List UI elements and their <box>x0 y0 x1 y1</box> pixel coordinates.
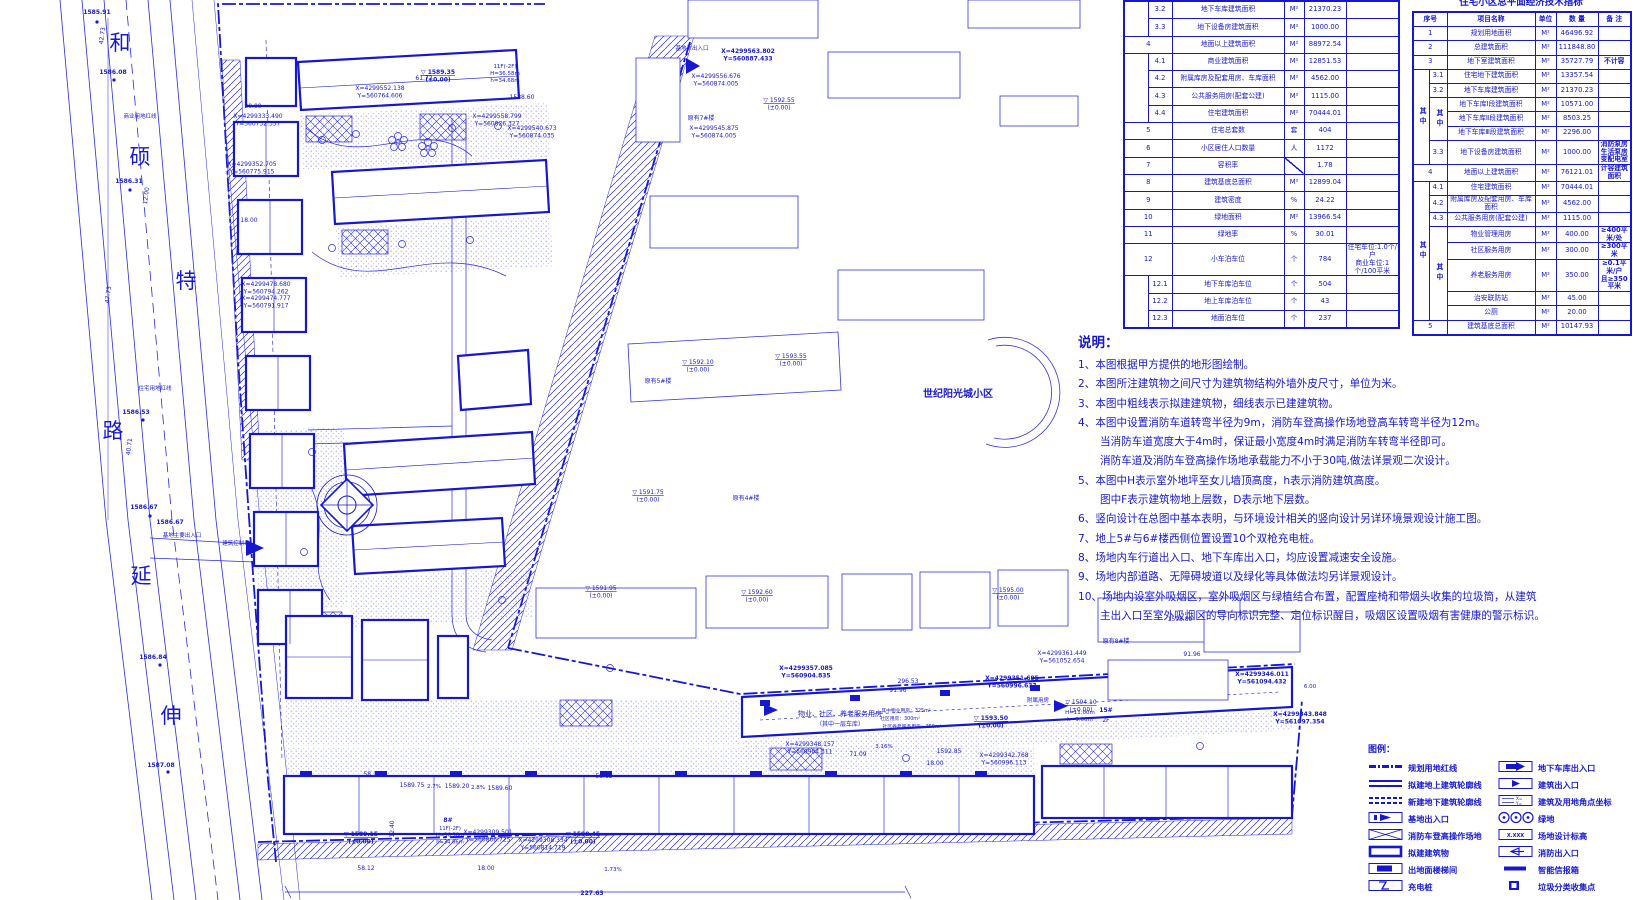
cut-icon <box>1498 894 1534 900</box>
table-cell: 4.1 <box>1148 53 1172 70</box>
economic-indicator-table-overall: 3.2地下车库建筑面积M²21370.233.3地下设备房建筑面积M²1000.… <box>1123 0 1400 329</box>
table-cell: 4562.00 <box>1556 195 1598 212</box>
cut-icon <box>1368 894 1404 900</box>
table-cell <box>1346 311 1399 329</box>
legend-label: 拟建地上建筑轮廓线 <box>1408 779 1482 791</box>
plan-label: ▽ 1593.50(±0.00) <box>974 715 1008 730</box>
plan-label: 40.71 <box>125 438 134 456</box>
legend-row <box>1368 895 1630 900</box>
table-cell: 个 <box>1284 244 1304 276</box>
table-cell: 地面泊车位 <box>1172 311 1284 329</box>
plan-label: 1586.67 <box>130 504 157 511</box>
table-cell: ≥0.1平米/户且≥350平米 <box>1598 260 1631 292</box>
plan-label: 原有8#楼 <box>1103 637 1130 645</box>
table-cell: 4.1 <box>1429 181 1447 195</box>
plan-label: 11F(-2F)H=36.58mh=34.68m <box>490 64 520 84</box>
table-cell: M² <box>1284 174 1304 191</box>
plan-label: 1586.08 <box>99 69 126 76</box>
plan-label: 6.00 <box>1304 684 1317 690</box>
note-line: 图中F表示建筑物地上层数，D表示地下层数。 <box>1078 491 1633 510</box>
table-cell: 1000.00 <box>1556 140 1598 164</box>
plan-label: 12.00 <box>142 187 151 205</box>
table-cell: 地下车库泊车位 <box>1172 276 1284 293</box>
table-cell <box>1346 276 1399 293</box>
legend-row: 出地面楼梯间智能信报箱 <box>1368 861 1630 878</box>
table-cell: 4.2 <box>1429 195 1447 212</box>
table-cell: 46496.92 <box>1556 27 1598 41</box>
plan-label: 3.16% <box>875 744 892 750</box>
table-cell: 地下车库Ⅱ段建筑面积 <box>1447 112 1535 126</box>
table-cell: 公共服务用房(配套公建) <box>1447 212 1535 226</box>
legend-block: 图例： 规划用地红线地下车库出入口拟建地上建筑轮廓线建筑出入口新建地下建筑轮廓线… <box>1368 742 1630 900</box>
legend-row: 基地出入口绿地 <box>1368 810 1630 827</box>
table-cell: 规划用地面积 <box>1447 27 1535 41</box>
plan-label: 1589.60 <box>488 785 513 792</box>
table-cell: M² <box>1535 126 1556 140</box>
table-cell: 13966.54 <box>1304 209 1346 226</box>
note-line: 4、本图中设置消防车道转弯半径为9m，消防车登高操作场地登高车转弯半径为12m。 <box>1078 414 1633 433</box>
plan-label: X=4299474.777Y=560791.917 <box>241 295 290 310</box>
plan-label: 11F(-2F)H=36.58mh=34.66m <box>436 826 464 845</box>
plan-label: 世纪阳光城小区 <box>923 387 993 400</box>
plan-label: 58.12 <box>595 773 612 780</box>
table-cell: 地下设备房建筑面积 <box>1172 19 1284 36</box>
table-cell: M² <box>1535 212 1556 226</box>
plan-label: 社区用房：300m² <box>880 715 920 722</box>
note-line: 8、场地内车行道出入口、地下车库出入口，均应设置减速安全设施。 <box>1078 549 1633 568</box>
table-cell: 个 <box>1284 293 1304 310</box>
plan-label: 1586.31 <box>115 178 142 185</box>
table-cell: 6 <box>1124 140 1172 157</box>
plan-label: X=4299346.011Y=561094.432 <box>1235 671 1289 686</box>
table-cell: 其中 <box>1413 181 1429 320</box>
table-cell: 住宅地下建筑面积 <box>1447 69 1535 83</box>
table-cell <box>1346 157 1399 174</box>
table-cell: 70444.01 <box>1304 105 1346 122</box>
legend-row: 新建地下建筑轮廓线X=Y=建筑及用地角点坐标 <box>1368 793 1630 810</box>
plan-label: ▽ 1593.55(±0.00) <box>775 353 807 368</box>
legend-label: 绿地 <box>1538 813 1554 825</box>
table-cell <box>1346 192 1399 209</box>
table-cell: M² <box>1535 165 1556 182</box>
right-table-title: 住宅小区总平面经济技术指标 <box>1412 0 1630 8</box>
table-cell: 总建筑面积 <box>1447 41 1535 55</box>
table-cell <box>1346 174 1399 191</box>
table-cell <box>1346 140 1399 157</box>
table-cell: 1000.00 <box>1304 19 1346 36</box>
note-line: 2、本图所注建筑物之间尺寸为建筑物结构外墙外皮尺寸，单位为米。 <box>1078 375 1633 394</box>
table-cell: 4 <box>1413 165 1447 182</box>
table-cell: 10571.00 <box>1556 98 1598 112</box>
table-cell: 30.01 <box>1304 226 1346 243</box>
note-line: 当消防车道宽度大于4m时，保证最小宽度4m时满足消防车转弯半径即可。 <box>1078 433 1633 452</box>
svg-text:Y=: Y= <box>1515 801 1523 806</box>
table-cell: 300.00 <box>1556 243 1598 260</box>
plan-label: 1592.85 <box>937 748 962 755</box>
plan-label: X=4299357.085Y=560904.835 <box>779 665 833 680</box>
table-cell: 套 <box>1284 123 1304 140</box>
plan-label: X=4299333.490Y=560732.357 <box>233 113 282 128</box>
plan-label: X=4299309.501Y=560806.725 <box>463 829 512 844</box>
table-cell: 1115.00 <box>1304 88 1346 105</box>
table-cell <box>1346 293 1399 310</box>
table-cell: 附属库房及配套用房、车库面积 <box>1447 195 1535 212</box>
plan-label: 住宅用地红线 <box>138 384 172 392</box>
plan-label: 12.40 <box>389 820 396 837</box>
legend-label: 规划用地红线 <box>1408 762 1457 774</box>
table-cell: 784 <box>1304 244 1346 276</box>
table-cell <box>1124 276 1148 328</box>
table-cell: 容积率 <box>1172 157 1284 174</box>
legend-row: 消防车登高操作场地X.XXX场地设计标高 <box>1368 827 1630 844</box>
table-cell: 建筑基底总面积 <box>1172 174 1284 191</box>
table-cell: 住宅车位:1.0个/户商业车位:1个/100平米 <box>1346 244 1399 276</box>
table-cell: 住宅总套数 <box>1172 123 1284 140</box>
table-cell: 地面以上建筑面积 <box>1172 36 1284 53</box>
table-cell <box>1346 19 1399 36</box>
table-cell: 住宅建筑面积 <box>1172 105 1284 122</box>
table-cell: 8503.25 <box>1556 112 1598 126</box>
table-cell: 地下车库建筑面积 <box>1447 83 1535 97</box>
plan-label: X=4299545.875Y=560874.005 <box>689 125 738 140</box>
legend-label: 建筑及用地角点坐标 <box>1538 796 1612 808</box>
table-cell <box>1598 212 1631 226</box>
table-cell: 小区居住人口数量 <box>1172 140 1284 157</box>
table-cell: 24.22 <box>1304 192 1346 209</box>
table-cell: M² <box>1535 195 1556 212</box>
legend-row: 充电桩垃圾分类收集点 <box>1368 878 1630 895</box>
plan-label: ▽ 1595.00(±0.00) <box>992 587 1024 602</box>
legend-label: 充电桩 <box>1408 881 1433 893</box>
plan-label: 42.73 <box>98 27 107 45</box>
note-line: 10、场地内设室外吸烟区，室外吸烟区与绿植结合布置，配置座椅和带烟头收集的垃圾筒… <box>1078 588 1633 607</box>
table-cell: M² <box>1284 19 1304 36</box>
table-cell: M² <box>1535 292 1556 306</box>
plan-label: 1589.75 <box>400 782 425 789</box>
note-line: 7、地上5#与6#楼西侧位置设置10个双枪充电桩。 <box>1078 530 1633 549</box>
table-cell: 1115.00 <box>1556 212 1598 226</box>
table-cell: 12899.04 <box>1304 174 1346 191</box>
table-cell: M² <box>1284 36 1304 53</box>
plan-label: 延 <box>131 564 152 588</box>
table-cell: 社区服务用房 <box>1447 243 1535 260</box>
plan-label: 附属用房 <box>1027 696 1050 704</box>
plan-label: ▽ 1589.15(±0.00) <box>344 831 378 846</box>
table-cell: 计容建筑面积 <box>1598 165 1631 182</box>
table-cell: M² <box>1535 260 1556 292</box>
plan-label: ▽ 1591.75(±0.00) <box>632 489 664 504</box>
plan-label: X=4299308.334Y=560814.719 <box>518 837 567 852</box>
table-cell <box>1598 292 1631 306</box>
table-cell: M² <box>1535 41 1556 55</box>
plan-label: 91.96 <box>1183 651 1200 658</box>
table-cell: M² <box>1284 1 1304 19</box>
table-cell <box>1346 53 1399 70</box>
plan-label: 1.73% <box>604 867 621 873</box>
table-cell: M² <box>1535 112 1556 126</box>
table-cell: 43 <box>1304 293 1346 310</box>
plan-label: 社区养老服务用房：350m² <box>883 723 942 730</box>
plan-label: X=4299348.157Y=560904.311 <box>785 741 834 756</box>
table-cell: 地下车库Ⅲ段建筑面积 <box>1447 126 1535 140</box>
note-line: 9、场地内部道路、无障碍坡道以及绿化等具体做法均另详景观设计。 <box>1078 568 1633 587</box>
plan-label: 61.72 <box>415 75 432 82</box>
plan-label: 58.12 <box>363 771 380 778</box>
plan-label: 1589.20 <box>445 783 470 790</box>
plan-label: 2F <box>1102 717 1110 724</box>
table-cell: 其中 <box>1429 98 1447 141</box>
table-cell: 地下车库建筑面积 <box>1172 1 1284 19</box>
plan-label: X=4299361.449Y=561052.654 <box>1037 650 1086 665</box>
table-cell: 公厕 <box>1447 306 1535 320</box>
table-cell: 4.4 <box>1148 105 1172 122</box>
plan-label: 15# <box>1099 707 1112 714</box>
table-cell: 附属库房及配套用房、车库面积 <box>1172 71 1284 88</box>
table-cell: 地面以上建筑面积 <box>1447 165 1535 182</box>
plan-label: 其中物业用房：325m² <box>881 707 930 714</box>
table-cell <box>1598 112 1631 126</box>
table-cell <box>1346 226 1399 243</box>
plan-label: ▽ 1590.45(±0.00) <box>566 831 600 846</box>
note-line: 主出入口至室外吸烟区的导向标识完整、定位标识醒目，吸烟区设置吸烟有害健康的警示标… <box>1078 607 1633 626</box>
table-cell: 3 <box>1413 55 1447 69</box>
plan-label: X=4299540.673Y=560874.035 <box>507 125 556 140</box>
plan-label: 原有4#楼 <box>733 494 760 502</box>
table-cell: 35727.79 <box>1556 55 1598 69</box>
table-cell: M² <box>1535 140 1556 164</box>
notes-title: 说明： <box>1078 331 1633 351</box>
table-cell: 12851.53 <box>1304 53 1346 70</box>
table-cell: 住宅建筑面积 <box>1447 181 1535 195</box>
table-cell: 8 <box>1124 174 1172 191</box>
plan-label: X=4299556.676Y=560874.005 <box>691 73 740 88</box>
legend-label: 拟建建筑物 <box>1408 847 1449 859</box>
plan-label: X=4299552.138Y=560764.606 <box>355 85 404 100</box>
table-cell: 其中 <box>1413 69 1429 164</box>
table-cell: 物业管理用房 <box>1447 226 1535 243</box>
table-cell: M² <box>1535 98 1556 112</box>
table-cell: M² <box>1535 69 1556 83</box>
table-cell: M² <box>1535 27 1556 41</box>
table-cell: ≥300平米 <box>1598 243 1631 260</box>
table-cell: 不计容 <box>1598 55 1631 69</box>
table-cell: 绿地面积 <box>1172 209 1284 226</box>
legend-label: 消防出入口 <box>1538 847 1579 859</box>
plan-label: H=11.00mh=9.00m <box>1065 710 1095 723</box>
table-cell: 3.3 <box>1429 140 1447 164</box>
plan-label: 18.00 <box>477 865 494 872</box>
table-cell: 个 <box>1284 276 1304 293</box>
table-cell: M² <box>1284 105 1304 122</box>
plan-label: ▽ 1592.10(±0.00) <box>682 359 714 374</box>
legend-row: 拟建建筑物消防出入口 <box>1368 844 1630 861</box>
table-cell <box>1346 209 1399 226</box>
table-cell: 88972.54 <box>1304 36 1346 53</box>
table-cell: 1.78 <box>1304 157 1346 174</box>
table-cell: 消防泵房生活泵房变配电室 <box>1598 140 1631 164</box>
plan-label: 硕 <box>130 145 151 169</box>
plan-label: 建筑控制线 <box>222 539 250 547</box>
plan-label: 路 <box>103 419 124 443</box>
table-cell: M² <box>1535 226 1556 243</box>
table-cell <box>1598 69 1631 83</box>
table-cell: 4.2 <box>1148 71 1172 88</box>
table-cell: 111848.80 <box>1556 41 1598 55</box>
table-cell: 2 <box>1413 41 1447 55</box>
table-cell: 1172 <box>1304 140 1346 157</box>
header-cell: 单位 <box>1535 12 1556 27</box>
table-cell: 地下车库Ⅰ段建筑面积 <box>1447 98 1535 112</box>
table-cell: 小车泊车位 <box>1172 244 1284 276</box>
plan-label: X=4299343.848Y=561097.354 <box>1273 711 1327 726</box>
plan-label: 2.8% <box>471 785 485 791</box>
table-cell: 3.1 <box>1429 69 1447 83</box>
table-cell: 12.1 <box>1148 276 1172 293</box>
plan-label: 8# <box>443 817 452 824</box>
table-cell: 12 <box>1124 244 1172 276</box>
plan-label: ▽ 1592.55(±0.00) <box>763 97 795 112</box>
legend-label: 基地出入口 <box>1408 813 1449 825</box>
table-cell: 个 <box>1284 311 1304 329</box>
note-line: 消防车道及消防车登高操作场地承载能力不小于30吨,做法详景观二次设计。 <box>1078 452 1633 471</box>
table-cell: M² <box>1535 243 1556 260</box>
table-cell: 45.00 <box>1556 292 1598 306</box>
plan-label: X=4299478.680Y=560794.262 <box>241 281 290 296</box>
legend-label: 出地面楼梯间 <box>1408 864 1457 876</box>
table-cell: 人 <box>1284 140 1304 157</box>
table-cell: 10 <box>1124 209 1172 226</box>
table-cell: 3.2 <box>1148 1 1172 19</box>
plan-label: 特 <box>176 269 197 293</box>
plan-label: 和 <box>110 31 131 55</box>
table-cell: 404 <box>1304 123 1346 140</box>
table-cell: 350.00 <box>1556 260 1598 292</box>
table-cell <box>1284 157 1304 174</box>
table-cell: 21370.23 <box>1556 83 1598 97</box>
table-cell: 公共服务用房(配套公建) <box>1172 88 1284 105</box>
legend-row: 拟建地上建筑轮廓线建筑出入口 <box>1368 776 1630 793</box>
plan-label: 1586.67 <box>156 519 183 526</box>
plan-label: 物业、社区、养老服务用房 <box>798 709 882 718</box>
table-cell: 400.00 <box>1556 226 1598 243</box>
plan-label: 227.63 <box>580 890 603 897</box>
table-cell: 建筑密度 <box>1172 192 1284 209</box>
plan-label: 58.12 <box>357 865 374 872</box>
table-cell: 237 <box>1304 311 1346 329</box>
table-cell <box>1598 41 1631 55</box>
note-line: 6、竖向设计在总图中基本表明，与环境设计相关的竖向设计另详环境景观设计施工图。 <box>1078 510 1633 529</box>
economic-indicator-table-residential: 序号项目名称单位数 量备 注1规划用地面积M²46496.922总建筑面积M²1… <box>1412 11 1632 336</box>
plan-label: 伸 <box>161 704 182 728</box>
table-cell: 9 <box>1124 192 1172 209</box>
legend-label: 消防车登高操作场地 <box>1408 830 1482 842</box>
plan-label: X=4299352.705Y=560775.915 <box>227 161 276 176</box>
table-cell: 11 <box>1124 226 1172 243</box>
header-cell: 序号 <box>1413 12 1447 27</box>
table-cell <box>1124 1 1148 36</box>
plan-label: 原有7#楼 <box>688 114 715 122</box>
table-cell: 1 <box>1413 27 1447 41</box>
plan-label: 1585.91 <box>83 9 110 16</box>
notes-block: 说明： 1、本图根据甲方提供的地形图绘制。2、本图所注建筑物之间尺寸为建筑物结构… <box>1078 331 1633 626</box>
note-line: 5、本图中H表示室外地坪至女儿墙顶高度，h表示消防建筑高度。 <box>1078 472 1633 491</box>
table-cell: 2296.00 <box>1556 126 1598 140</box>
table-cell: 504 <box>1304 276 1346 293</box>
table-cell <box>1598 98 1631 112</box>
table-cell: M² <box>1535 181 1556 195</box>
plan-label: （其中一层车库） <box>816 720 864 728</box>
table-cell: 地上车库泊车位 <box>1172 293 1284 310</box>
svg-text:X.XXX: X.XXX <box>1507 833 1524 839</box>
legend-label: 垃圾分类收集点 <box>1538 881 1595 893</box>
plan-label: X=4299351.695Y=560996.637 <box>985 675 1039 690</box>
table-cell: 4.3 <box>1429 212 1447 226</box>
table-cell: M² <box>1284 88 1304 105</box>
table-cell: 20.00 <box>1556 306 1598 320</box>
table-cell <box>1598 83 1631 97</box>
plan-label: X=4299342.768Y=560996.113 <box>979 752 1028 767</box>
table-cell <box>1598 126 1631 140</box>
table-cell: 养老服务用房 <box>1447 260 1535 292</box>
table-cell: 4562.00 <box>1304 71 1346 88</box>
table-cell: 4 <box>1124 36 1172 53</box>
table-cell <box>1598 306 1631 320</box>
note-line: 1、本图根据甲方提供的地形图绘制。 <box>1078 356 1633 375</box>
table-cell: M² <box>1284 209 1304 226</box>
table-cell: 76121.01 <box>1556 165 1598 182</box>
legend-label: 智能信报箱 <box>1538 864 1579 876</box>
plan-label: 2.7% <box>427 784 441 790</box>
table-cell: M² <box>1535 83 1556 97</box>
table-cell: M² <box>1535 306 1556 320</box>
plan-label: 1588.60 <box>510 94 535 101</box>
header-cell: 项目名称 <box>1447 12 1535 27</box>
table-cell: 绿地率 <box>1172 226 1284 243</box>
table-cell: % <box>1284 226 1304 243</box>
plan-label: 1586.84 <box>139 654 166 661</box>
plan-label: 基地次出入口 <box>675 44 708 52</box>
plan-label: 18.00 <box>926 760 943 767</box>
note-line: 3、本图中粗线表示拟建建筑物，细线表示已建建筑物。 <box>1078 395 1633 414</box>
table-cell: 5 <box>1124 123 1172 140</box>
legend-label: 地下车库出入口 <box>1538 762 1595 774</box>
table-cell: 4.3 <box>1148 88 1172 105</box>
table-cell: M² <box>1284 71 1304 88</box>
table-cell: % <box>1284 192 1304 209</box>
table-cell <box>1598 195 1631 212</box>
table-cell <box>1598 181 1631 195</box>
table-cell: 3.2 <box>1429 83 1447 97</box>
table-cell <box>1346 105 1399 122</box>
table-cell: 3.3 <box>1148 19 1172 36</box>
table-cell: 12.2 <box>1148 293 1172 310</box>
table-cell <box>1346 36 1399 53</box>
table-cell: M² <box>1535 55 1556 69</box>
plan-label: X=4299563.802Y=560887.433 <box>721 48 775 63</box>
table-cell: 70444.01 <box>1556 181 1598 195</box>
drawing-sheet: 和硕特路延伸1585.911586.081586.311586.531586.6… <box>0 0 1633 900</box>
plan-label: 基地主要出入口 <box>163 531 202 539</box>
table-cell: 地下设备房建筑面积 <box>1447 140 1535 164</box>
header-cell: 数 量 <box>1556 12 1598 27</box>
plan-label: 71.09 <box>849 751 866 758</box>
plan-label: 1587.08 <box>147 762 174 769</box>
table-cell <box>1598 27 1631 41</box>
plan-label: 47.73 <box>104 286 113 304</box>
table-cell: 其中 <box>1429 226 1447 320</box>
table-cell: 12.3 <box>1148 311 1172 329</box>
table-cell: 21370.23 <box>1304 1 1346 19</box>
